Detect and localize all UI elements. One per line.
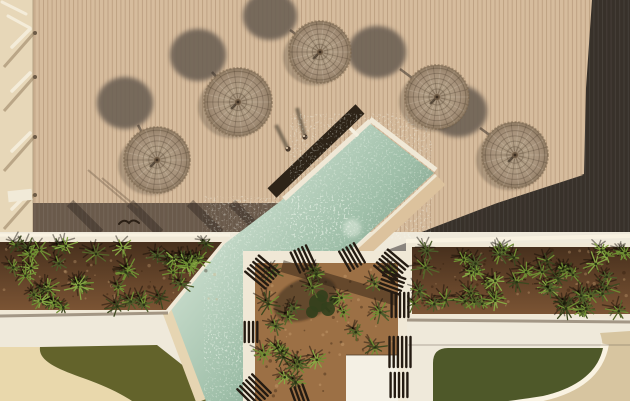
tree-crown [316, 290, 328, 302]
umbrella-shadow [170, 29, 226, 81]
swimmer-splash [343, 219, 361, 237]
aerial-pool-deck-photo [0, 0, 630, 401]
planter-right [402, 236, 630, 322]
side-walkway [0, 0, 37, 246]
person [285, 146, 290, 151]
tree-crown [306, 306, 318, 318]
umbrella-shadow [97, 77, 153, 129]
person [302, 134, 307, 139]
umbrella-shadow [348, 26, 406, 78]
aerial-photo-figure [0, 0, 630, 401]
deck-shadow-band [33, 203, 279, 233]
